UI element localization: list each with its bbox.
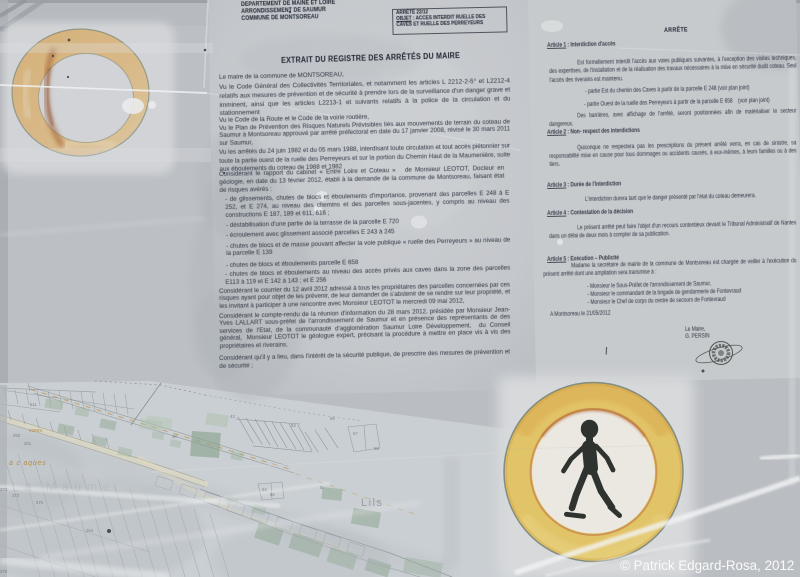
svg-text:271: 271 (36, 500, 44, 505)
svg-text:48: 48 (172, 434, 177, 439)
svg-text:57: 57 (353, 431, 358, 436)
svg-text:La Maume: La Maume (12, 480, 115, 494)
svg-text:58: 58 (374, 446, 379, 451)
svg-text:272: 272 (12, 493, 20, 498)
svg-text:vores: vores (29, 428, 43, 434)
svg-text:59: 59 (330, 416, 335, 421)
svg-text:254: 254 (86, 528, 94, 533)
svg-text:Lils: Lils (361, 497, 384, 509)
svg-text:54: 54 (262, 487, 267, 492)
svg-text:250: 250 (13, 433, 21, 438)
svg-text:43: 43 (230, 414, 235, 419)
svg-text:55: 55 (270, 492, 275, 497)
svg-text:à c aques: à c aques (9, 460, 47, 467)
svg-text:270: 270 (0, 569, 8, 574)
svg-text:251: 251 (24, 441, 32, 446)
svg-text:611: 611 (30, 402, 37, 407)
svg-text:53: 53 (291, 423, 296, 428)
svg-text:273: 273 (0, 487, 8, 492)
